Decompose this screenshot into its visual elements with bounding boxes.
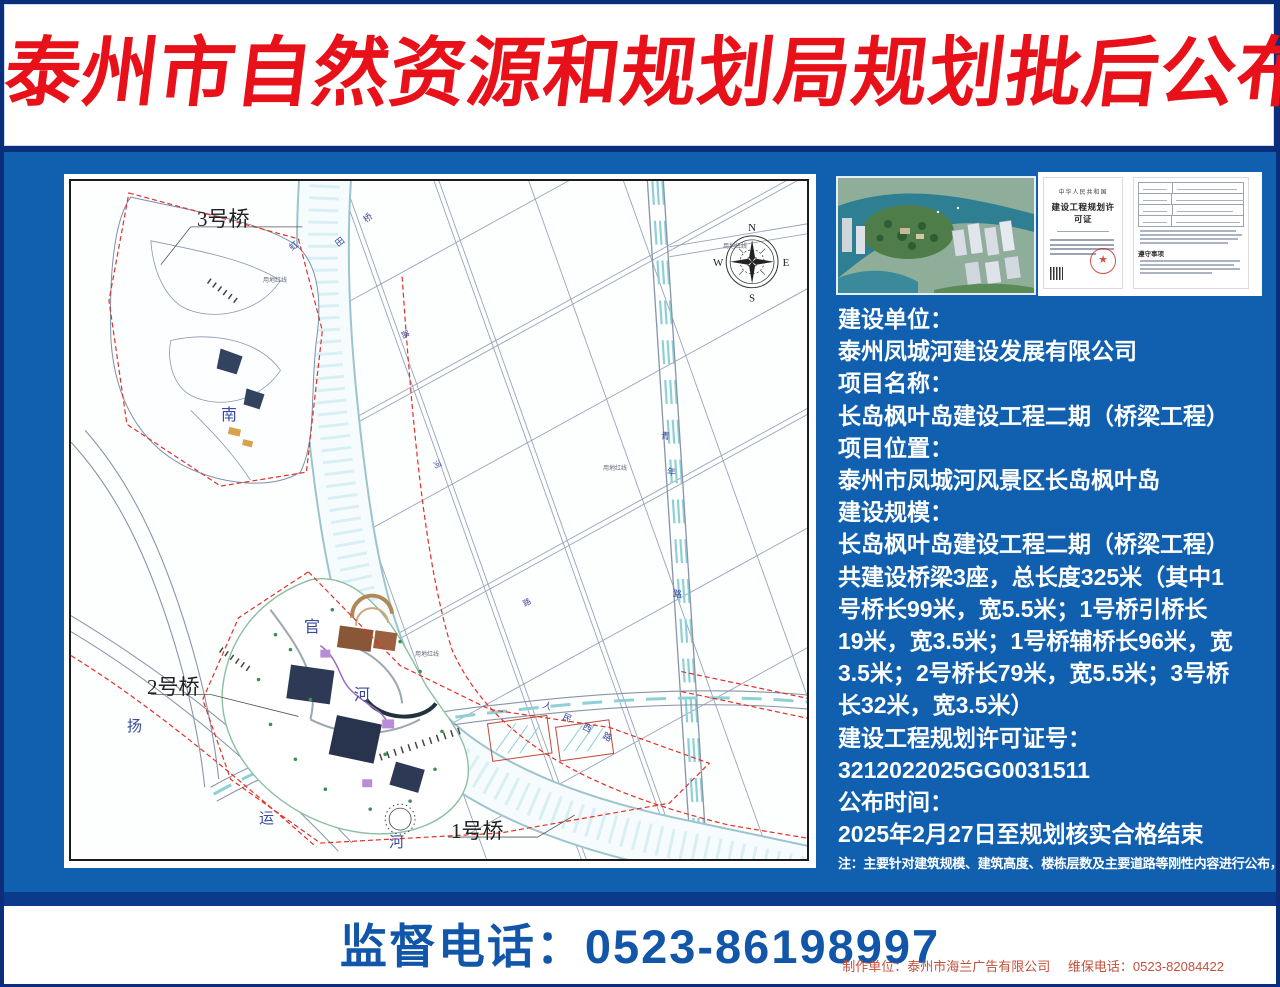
info-line-permit-no-label: 建设工程规划许可证号： [838,722,1242,754]
notice-board: { "title": "泰州市自然资源和规划局规划批后公布牌", "colors… [0,0,1280,987]
bridge-1-label: 1号桥 [451,815,504,845]
info-line-scale-4: 19米，宽3.5米；1号桥辅桥长96米，宽 [838,625,1242,657]
bridge-2-label: 2号桥 [147,671,200,701]
permit-title-line: 建设工程规划许可证 [1048,201,1118,225]
maker-credit: 制作单位：泰州市海兰广告有限公司 [842,959,1050,974]
compass-s-label: S [749,293,755,305]
info-line-scale-5: 3.5米；2号桥长79米，宽5.5米；3号桥 [838,657,1242,689]
map-text-char: 青 [660,429,670,443]
plan-map-drawing: N E S W 3号桥 2号桥 1号桥 南官河扬运河人民西路虹田桥青年路路河路用… [69,179,809,861]
info-line-build-unit-value: 泰州凤城河建设发展有限公司 [838,335,1242,367]
info-line-scale-3: 号桥长99米，宽5.5米；1号桥引桥长 [838,593,1242,625]
board-bottom-shade [4,892,1276,906]
map-text-char: 运 [259,807,274,828]
map-text-char: 扬 [127,715,142,736]
info-line-scale-1: 长岛枫叶岛建设工程二期（桥梁工程） [838,528,1242,560]
info-line-project-name-label: 项目名称： [838,367,1242,399]
maintenance-credit: 维保电话：0523-82084422 [1068,959,1224,974]
map-text-char: 路 [672,587,682,601]
info-line-permit-no-value: 3212022025GG0031511 [838,754,1242,786]
plan-map-svg: N E S W [71,181,809,861]
note-text: 注：主要针对建筑规模、建筑高度、楼栋层数及主要道路等刚性内容进行公布，其余部分仅… [838,855,1242,872]
project-info: 建设单位： 泰州凤城河建设发展有限公司 项目名称： 长岛枫叶岛建设工程二期（桥梁… [838,303,1242,872]
major-road [647,181,707,861]
project-rendering-photo [836,176,1036,295]
info-line-scale-label: 建设规模： [838,496,1242,528]
map-tiny-label: 用地红线 [603,463,627,472]
compass-e-label: E [783,257,790,269]
red-seal-icon: ★ [1090,248,1116,274]
credits-line: 制作单位：泰州市海兰广告有限公司 维保电话：0523-82084422 [842,956,1224,975]
map-tiny-label: 用地红线 [723,241,747,250]
info-line-build-unit-label: 建设单位： [838,303,1242,335]
compass-rose: N E S W [713,222,790,305]
info-line-publish-time-label: 公布时间： [838,786,1242,818]
info-line-publish-time-value: 2025年2月27日至规划核实合格结束 [838,818,1242,850]
compass-n-label: N [748,222,756,234]
map-text-char: 官 [304,613,320,637]
board-footer: 监督电话：0523-86198997 制作单位：泰州市海兰广告有限公司 维保电话… [4,906,1276,984]
permit-detail-page: 遵守事项 [1133,177,1249,289]
bridge-3-label: 3号桥 [197,203,250,233]
qr-code-icon [1050,267,1063,280]
info-line-scale-2: 共建设桥梁3座，总长度325米（其中1 [838,561,1242,593]
parking-plots [488,715,614,761]
map-text-char: 年 [666,465,676,479]
page-title: 泰州市自然资源和规划局规划批后公布牌 [0,5,1280,143]
west-road [71,430,219,787]
permit-number-line [1057,231,1109,232]
info-line-location-label: 项目位置： [838,432,1242,464]
info-line-project-name-value: 长岛枫叶岛建设工程二期（桥梁工程） [838,400,1242,432]
map-text-char: 南 [221,401,237,425]
permit-cover-page: 中华人民共和国 建设工程规划许可证 ★ [1043,177,1123,289]
permit-detail-table [1138,182,1244,227]
map-tiny-label: 用地红线 [415,649,439,658]
board-header: 泰州市自然资源和规划局规划批后公布牌 [4,4,1274,146]
info-line-scale-6: 长32米，宽3.5米） [838,689,1242,721]
map-text-char: 河 [389,831,404,852]
permit-country-line: 中华人民共和国 [1048,187,1118,196]
wetland-area [111,197,319,483]
permit-certificate-photo: 中华人民共和国 建设工程规划许可证 ★ 遵守事项 [1038,172,1262,296]
plan-map-panel: N E S W 3号桥 2号桥 1号桥 南官河扬运河人民西路虹田桥青年路路河路用… [64,174,816,868]
compass-w-label: W [713,257,724,269]
map-text-char: 河 [354,681,370,705]
map-tiny-label: 用地红线 [263,275,287,284]
info-line-location-value: 泰州市凤城河风景区长岛枫叶岛 [838,464,1242,496]
permit-rules-heading: 遵守事项 [1138,248,1244,258]
